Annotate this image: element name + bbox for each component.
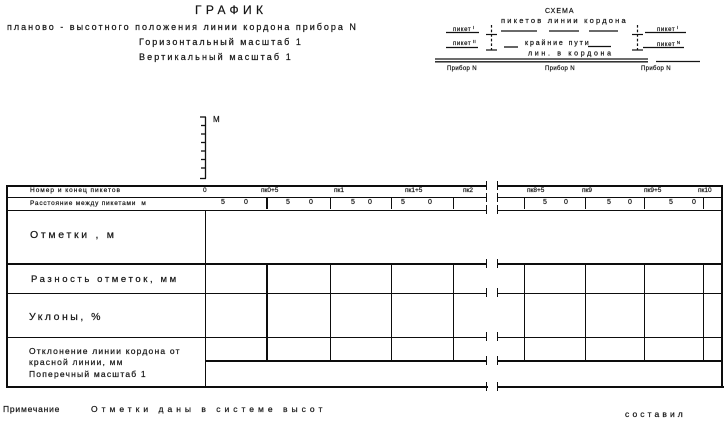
svg-text:Прибор N: Прибор N (641, 66, 671, 72)
svg-text:СХЕМА: СХЕМА (545, 8, 575, 15)
svg-text:пикетI: пикетI (657, 25, 679, 33)
svg-text:пикетов линии кордона: пикетов линии кордона (501, 16, 628, 25)
svg-text:пикетII: пикетII (453, 39, 476, 47)
svg-text:Прибор N: Прибор N (545, 66, 575, 72)
svg-text:лин. в кордона: лин. в кордона (528, 51, 614, 58)
svg-text:Прибор N: Прибор N (447, 66, 477, 72)
svg-text:пикетI: пикетI (453, 25, 475, 33)
svg-text:пикетN: пикетN (657, 40, 681, 48)
svg-text:крайние пути: крайние пути (525, 39, 591, 47)
